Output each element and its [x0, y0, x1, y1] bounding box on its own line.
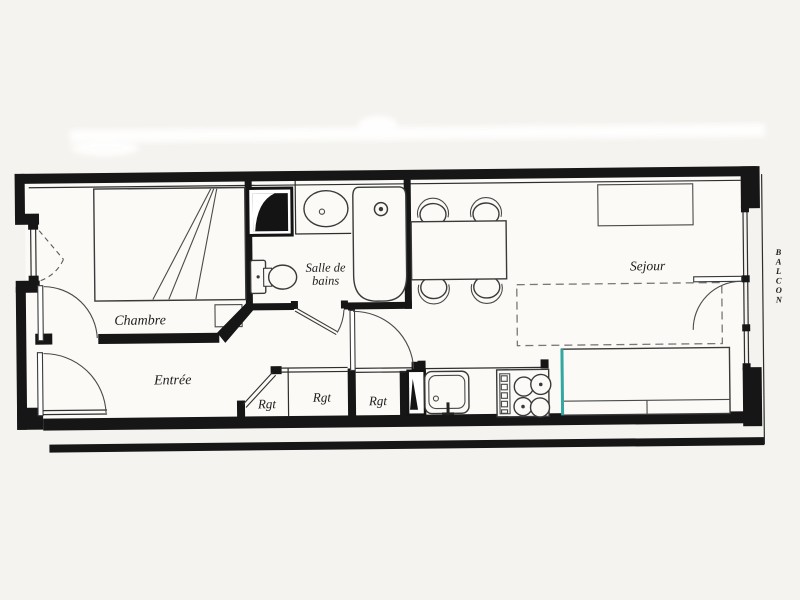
- closet2-label: Rgt: [312, 390, 332, 405]
- balcony-label: B A L C O N: [774, 247, 783, 305]
- stove: [497, 369, 551, 417]
- bed: [94, 188, 246, 302]
- burner: [530, 398, 549, 417]
- closet-door-leaf: [350, 310, 355, 370]
- sofa-bed: [560, 347, 730, 415]
- scan-whiteout-streak: [70, 116, 765, 156]
- living-label: Sejour: [630, 258, 666, 273]
- duct-shaft: [248, 188, 292, 235]
- lower-facade-line: [49, 437, 764, 452]
- washbasin: [304, 190, 348, 226]
- bedroom-door-leaf: [38, 286, 44, 341]
- entrance-door-leaf: [37, 353, 43, 416]
- balcony-slab-edge: [762, 174, 765, 444]
- bedroom-label: Chambre: [114, 313, 166, 329]
- balcony-door-leaf: [694, 276, 742, 282]
- closet3-label: Rgt: [368, 393, 388, 408]
- dining-table: [411, 221, 507, 280]
- kitchen-sink: [425, 371, 469, 415]
- kitchen-shaft: [408, 371, 425, 415]
- balcony-letter: N: [775, 294, 783, 304]
- bathtub: [353, 187, 407, 302]
- floor-plan-scan: Chambre Entrée: [0, 0, 800, 600]
- floor-plan-drawing: Chambre Entrée: [0, 0, 800, 600]
- closet1-label: Rgt: [257, 396, 277, 411]
- bathroom-label-line2: bains: [312, 274, 339, 288]
- entry-label: Entrée: [153, 373, 191, 388]
